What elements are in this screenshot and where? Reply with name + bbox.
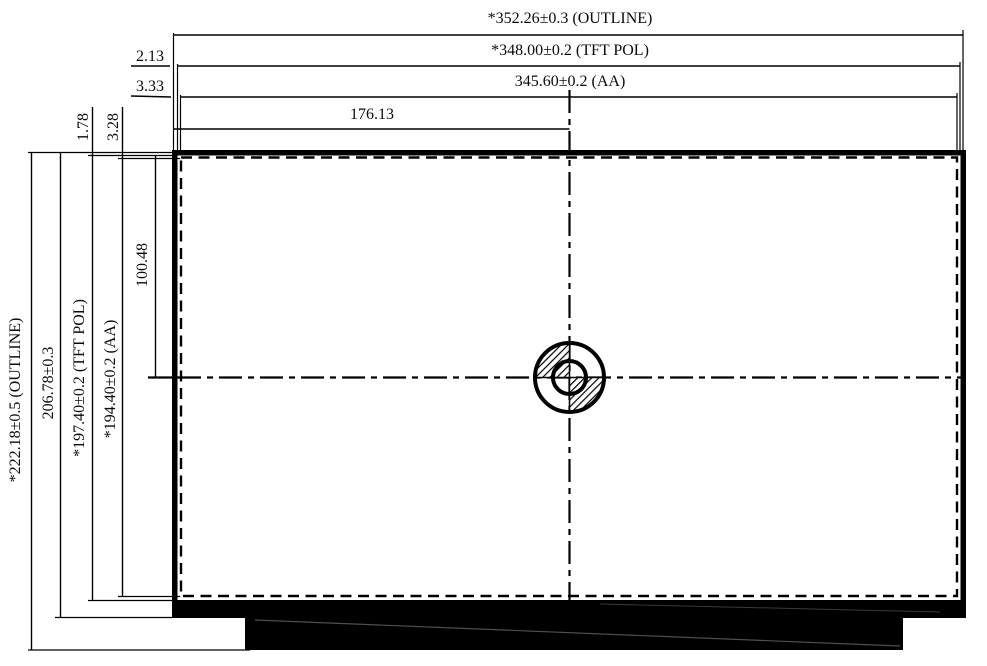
extension-lines xyxy=(28,30,963,650)
dim-label-outline-width: *352.26±0.3 (OUTLINE) xyxy=(488,11,653,27)
dimline-gap-3_33 xyxy=(131,96,171,97)
drawing-linework xyxy=(0,0,987,666)
engineering-drawing: *352.26±0.3 (OUTLINE) *348.00±0.2 (TFT P… xyxy=(0,0,987,666)
dim-label-pol-gap-left: 2.13 xyxy=(136,49,164,65)
dim-label-pol-width: *348.00±0.2 (TFT POL) xyxy=(491,43,649,59)
dim-label-aa-gap-top: 3.28 xyxy=(106,113,122,141)
dim-label-pol-height: *197.40±0.2 (TFT POL) xyxy=(72,299,88,457)
dim-label-aa-width: 345.60±0.2 (AA) xyxy=(515,74,626,90)
dim-label-glass-height: 206.78±0.3 xyxy=(41,347,57,420)
dim-label-outline-height: *222.18±0.5 (OUTLINE) xyxy=(8,318,24,483)
dim-label-aa-gap-left: 3.33 xyxy=(136,79,164,95)
dim-label-center-y: 100.48 xyxy=(135,243,151,287)
dim-label-center-x: 176.13 xyxy=(350,107,394,123)
dimension-lines xyxy=(32,35,964,650)
dim-label-pol-gap-top: 1.78 xyxy=(76,113,92,141)
center-mark-icon xyxy=(535,343,604,412)
dim-label-aa-height: *194.40±0.2 (AA) xyxy=(103,320,119,439)
